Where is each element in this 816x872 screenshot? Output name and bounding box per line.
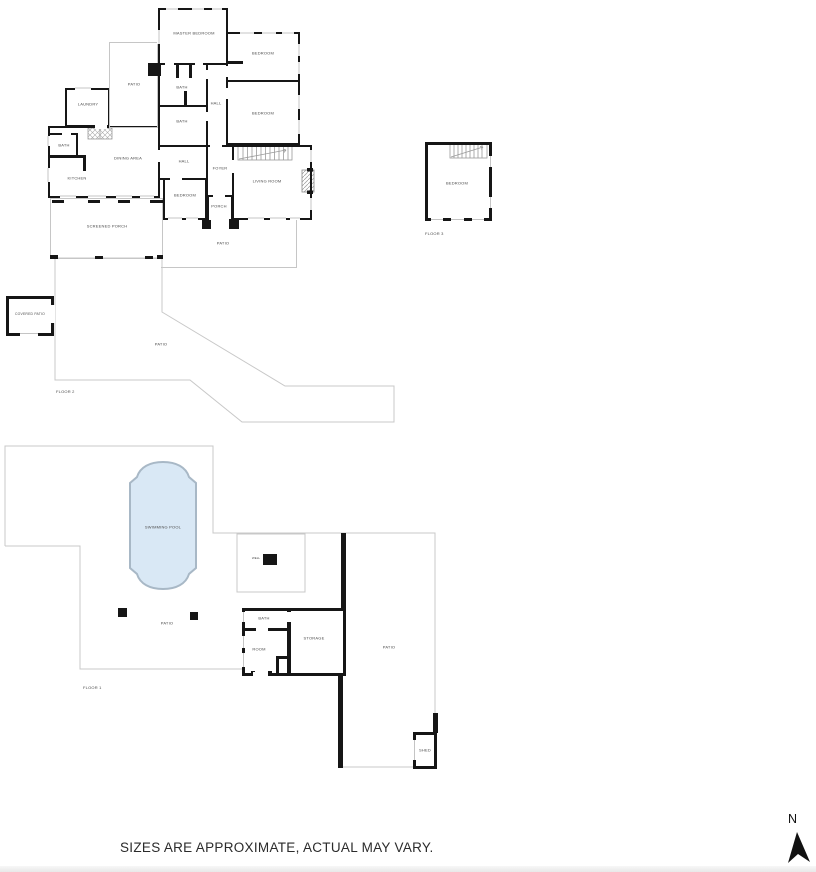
window [186, 216, 198, 220]
window [290, 216, 300, 220]
window [192, 7, 204, 11]
window [451, 217, 464, 222]
porch-rail [145, 256, 153, 259]
porch-rail [95, 256, 103, 259]
room-label-patio-upper: PATIO [128, 82, 140, 87]
room-f1-storage [288, 608, 346, 676]
window [157, 30, 161, 44]
window [212, 7, 222, 11]
wall-segment [338, 675, 343, 768]
room-label-bath-left: BATH [58, 143, 69, 148]
room-label-f1-storage: STORAGE [304, 636, 325, 641]
room-label-bath-lower: BATH [176, 119, 187, 124]
room-bath-lower [158, 105, 208, 147]
patio-post [118, 608, 127, 617]
door-gap [95, 124, 107, 129]
porch-rail [50, 255, 58, 259]
room-label-f1-bath: BATH [258, 616, 269, 621]
bottom-strip [0, 866, 816, 872]
floor3-label: FLOOR 3 [425, 231, 444, 236]
window [297, 120, 301, 134]
chimney-block [148, 63, 161, 76]
wall-segment [176, 63, 179, 78]
north-label: N [788, 812, 797, 826]
window [472, 217, 484, 222]
floor1-outline-upper [5, 446, 435, 713]
wall-segment [226, 61, 243, 64]
door-gap [205, 70, 210, 79]
porch-rail [157, 255, 163, 259]
wall-segment [341, 533, 346, 611]
porch-rail [88, 200, 100, 203]
room-label-f1-room: ROOM [252, 647, 265, 652]
room-label-well: WELL [252, 556, 260, 560]
window [270, 216, 286, 220]
room-laundry [65, 88, 110, 127]
door-post [268, 671, 272, 676]
window [166, 7, 178, 11]
porch-rail [52, 200, 64, 203]
door-gap [195, 62, 203, 66]
room-label-bedroom-right: BEDROOM [252, 111, 274, 116]
window [297, 95, 301, 109]
room-label-laundry: LAUNDRY [78, 102, 98, 107]
room-label-shed: SHED [419, 748, 431, 753]
north-arrow-icon [788, 832, 810, 863]
room-label-patio-mid: PATIO [217, 241, 229, 246]
window [309, 150, 313, 162]
window [412, 740, 417, 760]
room-label-hall-lower: HALL [179, 159, 190, 164]
patio-post [190, 612, 198, 620]
room-label-floor3-bedroom: BEDROOM [446, 181, 468, 186]
floor-plan-canvas: MASTER BEDROOM BEDROOM BEDROOM BATH HALL… [0, 0, 816, 872]
room-label-living-room: LIVING ROOM [253, 179, 282, 184]
door-gap [62, 132, 71, 136]
room-label-dining-area: DINING AREA [114, 156, 142, 161]
door-gap [156, 150, 161, 162]
wall-segment [433, 713, 438, 733]
door-gap [210, 144, 222, 149]
wall-segment [189, 63, 192, 78]
door-gap [225, 88, 230, 99]
window [488, 197, 493, 208]
floor1-label: FLOOR 1 [83, 685, 102, 690]
door-gap [225, 66, 230, 77]
disclaimer-text: SIZES ARE APPROXIMATE, ACTUAL MAY VARY. [120, 840, 434, 855]
porch-post [229, 219, 239, 229]
well-box [263, 554, 277, 565]
room-covered-patio [6, 296, 54, 336]
room-label-patio-right: PATIO [383, 645, 395, 650]
door-gap [165, 62, 174, 66]
room-label-patio-pool: PATIO [161, 621, 173, 626]
room-master-bedroom [158, 8, 228, 65]
room-label-bedroom-lower: BEDROOM [174, 193, 196, 198]
wall-segment [48, 155, 86, 158]
window [241, 653, 246, 667]
door-gap [253, 672, 268, 677]
window [88, 194, 106, 198]
window [46, 168, 50, 182]
window [168, 216, 182, 220]
door-gap [231, 160, 236, 173]
room-label-bath-upper: BATH [176, 85, 187, 90]
room-label-patio-large: PATIO [155, 342, 167, 347]
room-label-porch: PORCH [211, 204, 226, 209]
window [309, 198, 313, 210]
room-label-hall-upper: HALL [211, 101, 222, 106]
wall-segment [83, 155, 86, 171]
window [140, 194, 154, 198]
wall-segment [184, 91, 187, 107]
window [116, 194, 132, 198]
room-bedroom-top-right [226, 32, 300, 82]
porch-rail [150, 200, 163, 203]
door-gap [256, 627, 268, 631]
room-f1-room [242, 628, 290, 676]
window [262, 31, 276, 35]
window [241, 612, 246, 622]
room-label-covered-patio: COVERED PATIO [15, 312, 45, 316]
door-gap [205, 112, 210, 121]
window [297, 62, 301, 74]
room-label-master-bedroom: MASTER BEDROOM [173, 31, 214, 36]
window [488, 156, 493, 167]
window [46, 136, 50, 146]
room-label-bedroom-top-right: BEDROOM [252, 51, 274, 56]
window [241, 636, 246, 648]
wall-segment [276, 656, 279, 676]
door-gap [50, 305, 55, 323]
window [282, 31, 294, 35]
room-label-screened-porch: SCREENED PORCH [87, 224, 128, 229]
door-gap [213, 194, 225, 199]
door-gap [287, 612, 291, 622]
window [248, 216, 264, 220]
window [297, 44, 301, 56]
room-label-foyer: FOYER [213, 166, 228, 171]
window [431, 217, 443, 222]
area-screened-porch [50, 198, 163, 259]
floor2-patio-outline [55, 258, 394, 422]
floor2-label: FLOOR 2 [56, 389, 75, 394]
room-label-kitchen: KITCHEN [68, 176, 87, 181]
room-foyer [206, 145, 234, 197]
porch-rail [118, 200, 130, 203]
window [60, 194, 76, 198]
room-label-swimming-pool: SWIMMING POOL [145, 525, 181, 530]
window [20, 331, 38, 336]
window [75, 86, 91, 90]
door-gap [170, 177, 182, 181]
window [240, 31, 254, 35]
room-bedroom-lower [163, 178, 207, 220]
porch-post [202, 220, 211, 229]
